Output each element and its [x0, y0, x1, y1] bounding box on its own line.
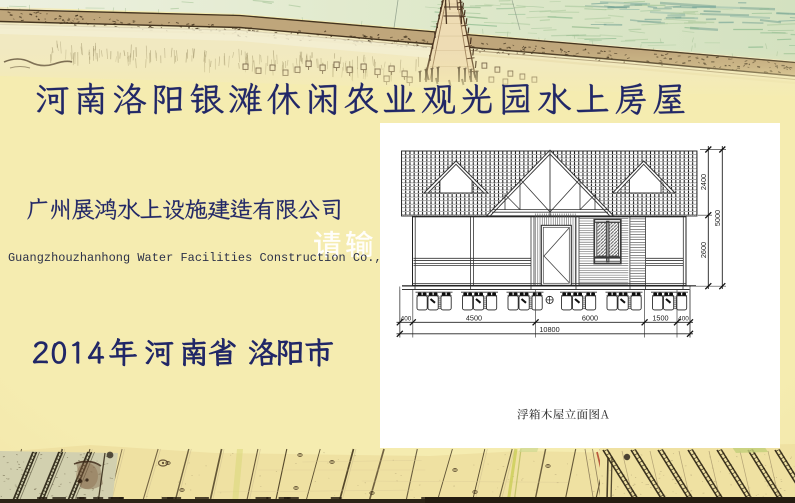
svg-text:10800: 10800	[539, 325, 559, 334]
svg-text:4500: 4500	[466, 313, 482, 322]
svg-text:400: 400	[401, 315, 412, 322]
svg-text:5000: 5000	[713, 210, 722, 226]
svg-text:1500: 1500	[652, 313, 668, 322]
svg-text:400: 400	[678, 315, 689, 322]
svg-text:2400: 2400	[699, 174, 708, 190]
svg-text:6000: 6000	[582, 313, 598, 322]
svg-text:2600: 2600	[699, 242, 708, 258]
svg-text:Guangzhouzhanhong Water Facili: Guangzhouzhanhong Water Facilities Const…	[8, 251, 382, 265]
